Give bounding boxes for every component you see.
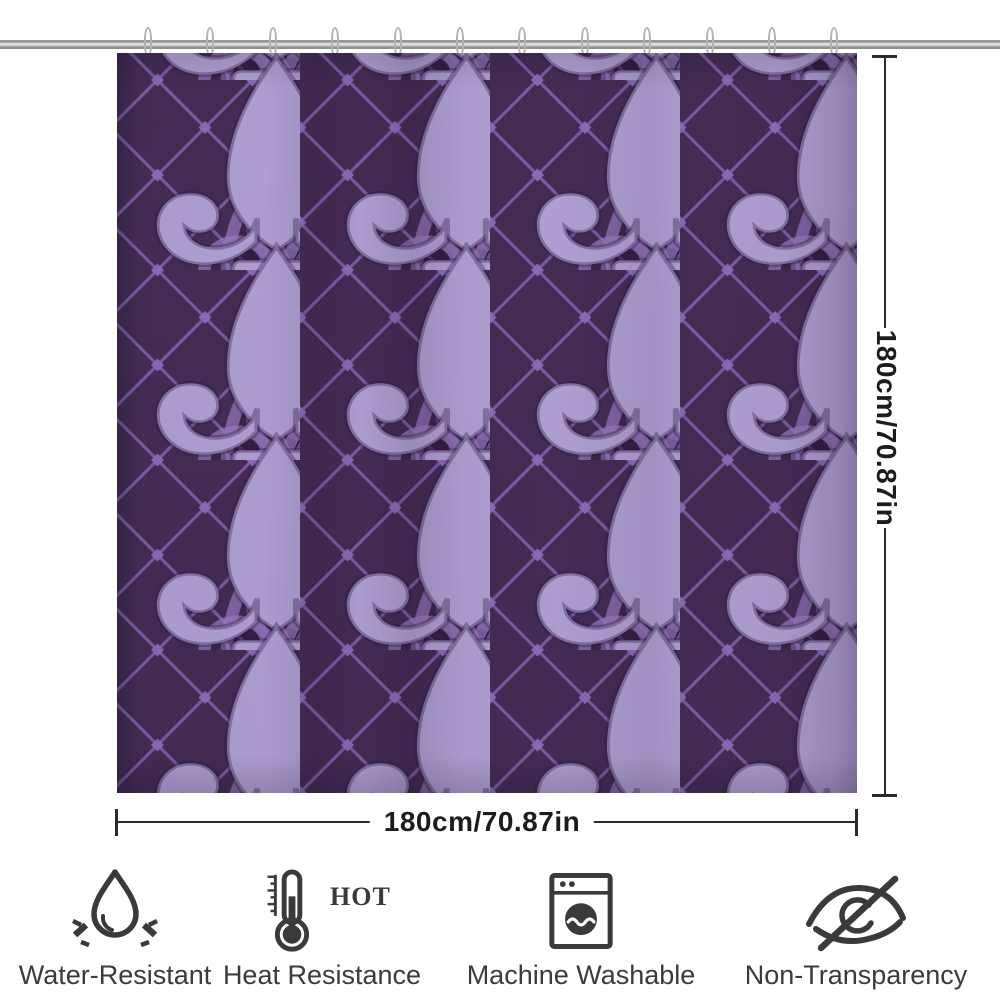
feature-machine-washable: Machine Washable bbox=[461, 866, 701, 991]
eye-slash-icon bbox=[798, 867, 914, 955]
feature-label: Machine Washable bbox=[461, 960, 701, 991]
feature-label: Water-Resistant bbox=[0, 960, 235, 991]
curtain-preview bbox=[117, 53, 857, 793]
height-dimension-line-upper bbox=[884, 57, 886, 328]
feature-label: Heat Resistance bbox=[202, 960, 442, 991]
feature-non-transparency: Non-Transparency bbox=[736, 866, 976, 991]
feature-water-resistant: Water-Resistant bbox=[0, 866, 235, 991]
water-drop-icon bbox=[69, 867, 161, 955]
washing-machine-icon bbox=[540, 868, 622, 954]
width-dimension-label: 180cm/70.87in bbox=[370, 806, 594, 838]
feature-heat-resistance: HOT Heat Resistance bbox=[202, 866, 442, 991]
curtain-hooks bbox=[0, 0, 1000, 60]
thermometer-icon bbox=[248, 867, 336, 955]
width-dimension-cap-right bbox=[855, 809, 858, 836]
hot-label: HOT bbox=[330, 882, 391, 912]
height-dimension-cap-bottom bbox=[872, 794, 897, 797]
height-dimension-line-lower bbox=[884, 528, 886, 795]
curtain-pattern bbox=[117, 53, 857, 793]
feature-label: Non-Transparency bbox=[736, 960, 976, 991]
height-dimension-label: 180cm/70.87in bbox=[870, 330, 902, 526]
product-image: { "product": { "type": "shower-curtain-p… bbox=[0, 0, 1000, 1000]
